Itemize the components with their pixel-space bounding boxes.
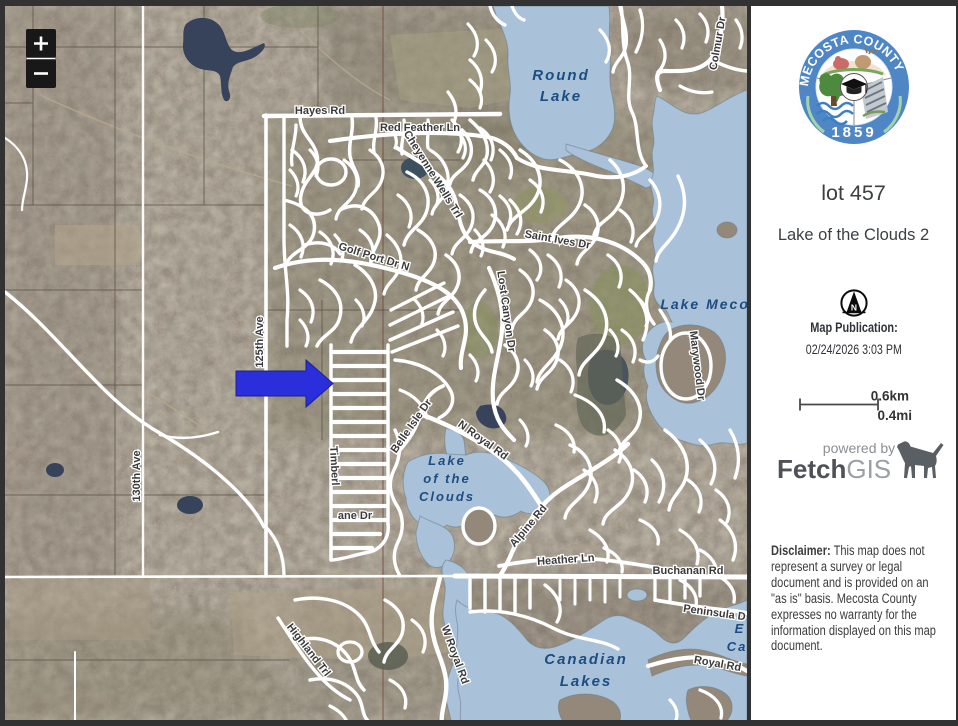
svg-text:125th Ave: 125th Ave bbox=[254, 316, 266, 367]
svg-text:FetchGIS: FetchGIS bbox=[777, 454, 891, 484]
svg-text:0.4mi: 0.4mi bbox=[877, 408, 912, 423]
svg-text:ane Dr: ane Dr bbox=[338, 510, 373, 522]
svg-text:Buchanan Rd: Buchanan Rd bbox=[653, 565, 724, 577]
svg-text:Hayes Rd: Hayes Rd bbox=[295, 105, 345, 117]
svg-text:N: N bbox=[850, 303, 856, 313]
svg-text:0.6km: 0.6km bbox=[871, 389, 909, 404]
svg-text:Lakes: Lakes bbox=[560, 673, 613, 690]
svg-text:Round: Round bbox=[532, 67, 589, 84]
svg-text:Lake: Lake bbox=[428, 453, 466, 468]
svg-text:E: E bbox=[735, 621, 746, 636]
svg-text:Lake: Lake bbox=[540, 88, 582, 105]
svg-text:of the: of the bbox=[423, 471, 470, 486]
svg-text:Clouds: Clouds bbox=[419, 489, 475, 504]
svg-text:130th Ave: 130th Ave bbox=[131, 450, 143, 501]
svg-text:Timberl: Timberl bbox=[327, 446, 341, 486]
svg-text:Can: Can bbox=[727, 639, 747, 654]
svg-text:Red Feather Ln: Red Feather Ln bbox=[380, 122, 460, 134]
svg-text:1859: 1859 bbox=[831, 124, 876, 141]
svg-text:Lake Mecos: Lake Mecos bbox=[660, 296, 747, 312]
svg-text:Canadian: Canadian bbox=[544, 651, 628, 668]
